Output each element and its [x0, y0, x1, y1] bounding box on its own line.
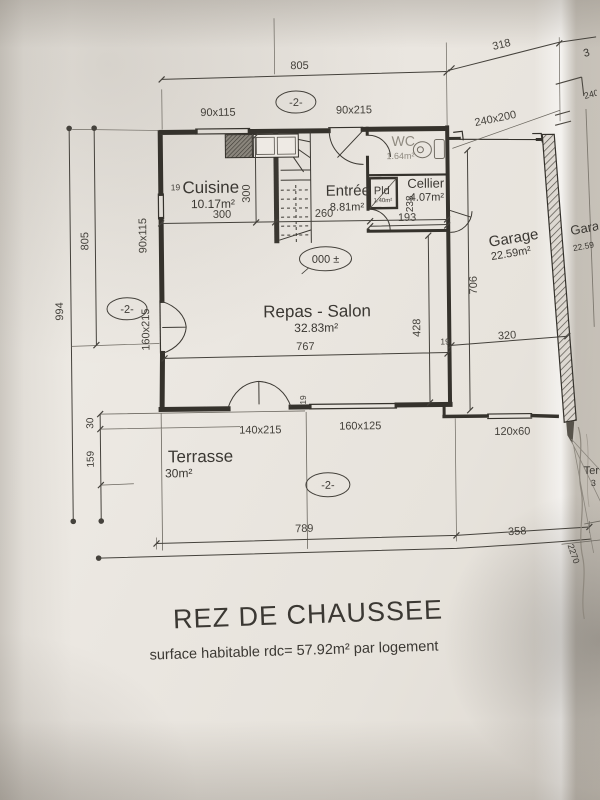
adjacent-fold-dim: 2270 — [566, 543, 582, 565]
dim-salon-w: 767 — [296, 341, 314, 353]
toilet-icon — [434, 139, 444, 158]
dim-entree-w: 260 — [315, 208, 333, 220]
plan-title: REZ DE CHAUSSEE — [173, 594, 444, 634]
photographed-floor-plan: 805 318 90x115 90x215 240x200 -2- WC 1.6… — [0, 0, 600, 800]
dim-top-805: 805 — [290, 60, 308, 72]
opening-window-left-salon: 160x215 — [140, 308, 152, 350]
dim-garage-w: 320 — [497, 329, 516, 342]
dim-cuisine-h: 300 — [241, 184, 253, 202]
dim-cellier-w: 193 — [398, 212, 416, 224]
floor-plan-drawing: 805 318 90x115 90x215 240x200 -2- WC 1.6… — [0, 0, 600, 800]
room-placard-name: Pld — [374, 185, 390, 197]
opening-window-garage: 120x60 — [494, 426, 530, 438]
window-symbols — [158, 125, 546, 422]
dim-wall19-garage: 19 — [440, 336, 450, 346]
dim-left-805: 805 — [79, 232, 91, 250]
room-salon-name: Repas - Salon — [263, 301, 371, 321]
dim-salon-h: 428 — [411, 319, 423, 337]
dim-wall19-salon: 19 — [298, 395, 308, 405]
dim-cellier-h: 238 — [405, 195, 416, 212]
opening-window-left-kitchen: 90x115 — [137, 218, 149, 253]
adjacent-terrasse-area: 3 — [591, 478, 596, 488]
kitchen-counter — [225, 134, 298, 158]
room-terrasse-name: Terrasse — [168, 447, 233, 467]
room-wc-name: WC — [392, 133, 415, 149]
room-placard-area: 1.40m² — [374, 198, 393, 204]
dim-left-30: 30 — [85, 417, 96, 429]
opening-door-garage: 240x200 — [474, 109, 518, 129]
page-fold-creases — [571, 427, 600, 619]
dim-cuisine-w: 300 — [213, 209, 231, 221]
dim-bottom-789: 789 — [295, 523, 314, 536]
adjacent-terrasse-name: Ter — [584, 465, 600, 477]
wc-fixtures — [413, 139, 444, 158]
dim-top-318: 318 — [491, 37, 512, 53]
level-marker-bottom: -2- — [321, 480, 335, 492]
dim-garage-h: 706 — [468, 276, 480, 294]
room-entree-area: 8.81m² — [330, 201, 365, 213]
opening-door-entry: 90x215 — [336, 104, 372, 116]
room-cellier-name: Cellier — [407, 175, 445, 190]
adjacent-top-dim: 3 — [582, 47, 591, 60]
dim-bottom-358: 358 — [508, 525, 527, 538]
plan-subtitle: surface habitable rdc= 57.92m² par logem… — [149, 639, 438, 664]
opening-window-top: 90x115 — [200, 107, 235, 119]
adjacent-garage-name: Gara — [569, 218, 600, 238]
room-wc-area: 1.64m² — [386, 151, 414, 161]
room-cuisine-name: Cuisine — [182, 178, 239, 198]
dim-left-159: 159 — [86, 450, 97, 467]
room-entree-name: Entrée — [326, 182, 370, 199]
door-swings — [160, 129, 474, 408]
room-salon-area: 32.83m² — [294, 321, 338, 335]
exterior-walls — [158, 126, 557, 420]
room-terrasse-area: 30m² — [165, 466, 192, 480]
witness-lines — [68, 15, 590, 550]
opening-door-terrace: 140x215 — [239, 424, 281, 436]
opening-window-bottom: 160x125 — [339, 420, 381, 432]
level-marker-left: -2- — [120, 304, 134, 316]
dim-wall19-cuisine: 19 — [171, 182, 181, 192]
washbasin-icon — [413, 142, 431, 158]
dim-left-994: 994 — [54, 302, 66, 320]
party-wall — [542, 134, 576, 444]
level-marker-top: -2- — [289, 97, 303, 109]
level-marker-zero: 000 ± — [312, 254, 340, 266]
